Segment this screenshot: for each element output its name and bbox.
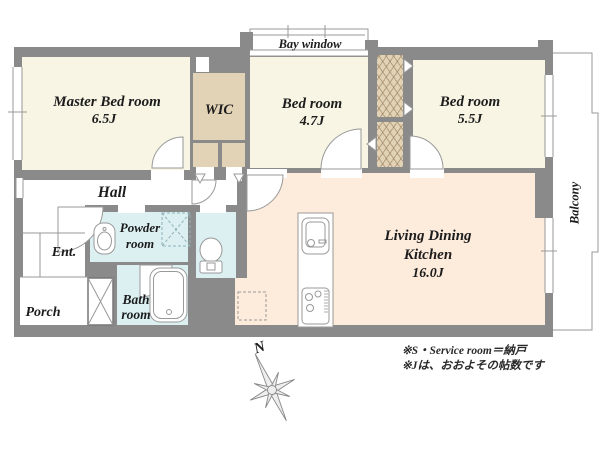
label-master-bedroom-size: 6.5J (92, 113, 117, 128)
closet-fold-door-icon (404, 59, 413, 73)
note-line-1: ※S・Service room＝納戸 (402, 344, 544, 359)
kitchen-sink-icon (302, 218, 329, 254)
label-bay-window: Bay window (279, 38, 342, 51)
window-master-left (8, 67, 27, 160)
kitchen-counter (298, 213, 333, 327)
bathtub-icon (150, 268, 187, 322)
door-ldk (247, 175, 283, 211)
label-bath-line1: Bath (122, 293, 149, 307)
door-hall (192, 180, 216, 204)
label-bedroom-47: Bed room (282, 97, 342, 113)
plan-notes: ※S・Service room＝納戸 ※Jは、おおよその帖数です (402, 344, 544, 374)
label-powder-line1: Powder (120, 221, 160, 235)
door-master-bedroom (152, 137, 183, 168)
sink-icon (94, 223, 115, 254)
label-bedroom-55: Bed room (440, 95, 500, 111)
label-bedroom-55-size: 5.5J (458, 113, 483, 128)
wic-top-notch (196, 57, 209, 72)
label-ldk-line1: Living Dining (384, 229, 471, 245)
wall-stub-top-right (538, 40, 553, 60)
label-ldk-line2: Kitchen (404, 248, 452, 264)
plan-linework (0, 0, 600, 450)
closet-fold-door-icon (404, 102, 413, 116)
window-hall-left (16, 178, 23, 198)
compass-icon (231, 342, 311, 432)
label-bath-line2: room (121, 308, 150, 322)
label-master-bedroom: Master Bed room (53, 95, 161, 111)
note-line-2: ※Jは、おおよその帖数です (402, 359, 544, 374)
label-bedroom-47-size: 4.7J (300, 115, 325, 130)
floor-plan: Master Bed room 6.5J WIC Bed room 4.7J B… (0, 0, 600, 450)
label-wic: WIC (205, 103, 233, 118)
closet-fold-door-icon (367, 137, 376, 151)
label-porch: Porch (26, 306, 61, 321)
label-balcony: Balcony (568, 182, 581, 224)
wall-pillar-ldk (535, 173, 545, 218)
label-powder-line2: room (126, 237, 154, 251)
label-hall: Hall (98, 185, 126, 201)
door-bedroom-47 (321, 129, 361, 169)
toilet-icon (200, 238, 222, 273)
storage-x-icon (88, 278, 113, 325)
door-bedroom-55 (410, 136, 443, 169)
washer-space-icon (162, 213, 190, 246)
label-entrance: Ent. (52, 246, 77, 261)
stove-icon (302, 288, 329, 324)
fridge-space-icon (238, 292, 266, 320)
label-ldk-size: 16.0J (412, 267, 444, 282)
